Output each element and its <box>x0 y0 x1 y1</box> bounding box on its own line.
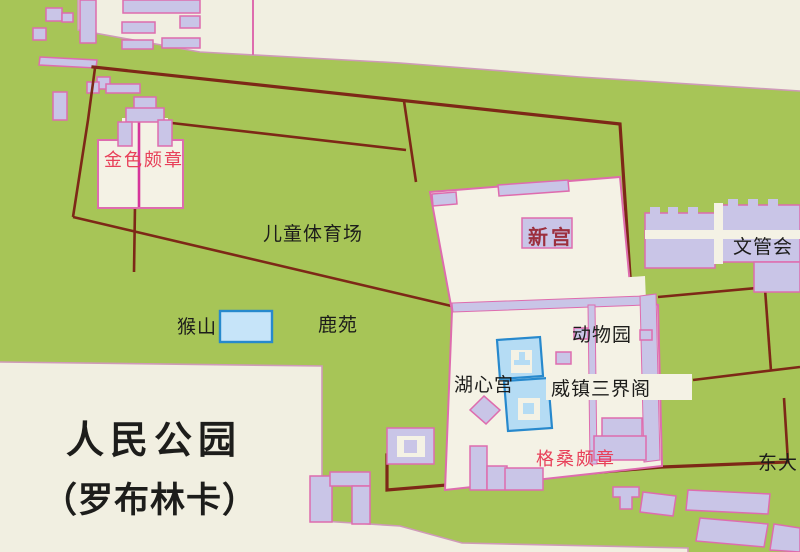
label-weizhen-pavilion: 威镇三界阁 <box>551 378 651 400</box>
southwest-pavilion <box>387 428 434 464</box>
label-new-palace: 新宫 <box>528 225 574 249</box>
building <box>432 192 457 206</box>
label-east-gate: 东大 <box>758 452 798 474</box>
building <box>80 0 96 43</box>
building <box>768 199 778 207</box>
building <box>748 199 758 207</box>
building <box>123 0 200 13</box>
building <box>770 524 800 552</box>
building <box>118 122 132 146</box>
building <box>122 40 153 49</box>
courtyard-gap <box>714 203 723 264</box>
building <box>330 472 370 486</box>
park-title-line2: （罗布林卡） <box>42 481 258 521</box>
path-below-golden-phodrang <box>134 206 135 272</box>
building <box>310 476 332 522</box>
island-building <box>523 403 534 414</box>
building <box>686 490 770 514</box>
building <box>33 28 46 40</box>
building <box>696 518 768 547</box>
building <box>556 352 571 364</box>
building <box>505 468 543 490</box>
building <box>645 213 715 268</box>
label-deer-garden: 鹿苑 <box>318 314 358 336</box>
monkey-hill-pool <box>220 311 272 342</box>
map-canvas: 金色颇章 儿童体育场 新宫 文管会 猴山 鹿苑 动物园 湖心宫 威镇三界阁 格桑… <box>0 0 800 552</box>
building <box>688 207 698 215</box>
building <box>754 262 800 292</box>
park-title-line1: 人民公园 <box>66 418 242 462</box>
building <box>650 207 660 215</box>
building <box>106 84 140 93</box>
building <box>668 207 678 215</box>
building <box>158 120 172 146</box>
label-culture-committee: 文管会 <box>733 236 793 258</box>
label-lake-heart-palace: 湖心宫 <box>454 374 514 396</box>
building <box>470 446 487 490</box>
label-monkey-hill: 猴山 <box>177 316 217 338</box>
pavilion-building <box>404 440 417 453</box>
label-zoo: 动物园 <box>572 324 632 346</box>
label-golden-phodrang: 金色颇章 <box>104 150 184 171</box>
building <box>487 466 507 490</box>
building <box>728 199 738 207</box>
building <box>62 13 73 22</box>
building <box>352 486 370 524</box>
label-children-sports-field: 儿童体育场 <box>263 223 363 245</box>
island-pavilion <box>514 360 530 365</box>
building <box>46 8 62 21</box>
label-kelsang-phodrang: 格桑颇章 <box>536 449 616 470</box>
building <box>53 92 67 120</box>
building <box>640 492 676 516</box>
building <box>162 38 200 48</box>
building <box>122 22 155 33</box>
building <box>640 330 652 340</box>
park-map: 金色颇章 儿童体育场 新宫 文管会 猴山 鹿苑 动物园 湖心宫 威镇三界阁 格桑… <box>0 0 800 552</box>
building <box>180 16 200 28</box>
